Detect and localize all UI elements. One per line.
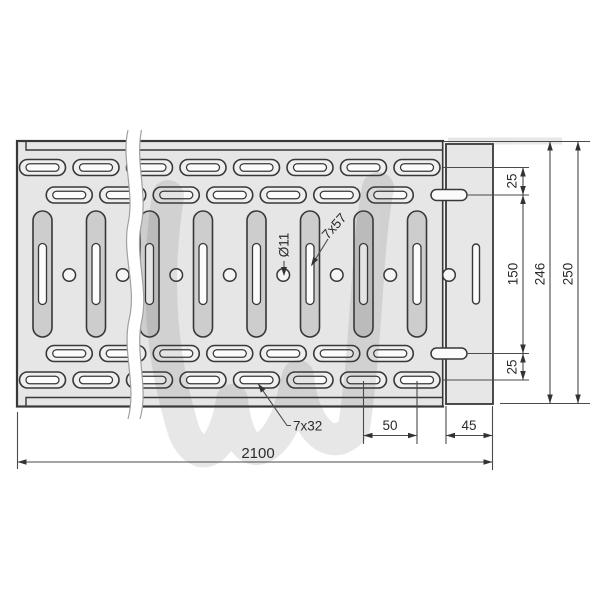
round-hole	[384, 269, 397, 282]
dim-label-45: 45	[461, 418, 476, 433]
junction-slot-bottom	[431, 348, 467, 359]
dimension-150: 150	[506, 195, 526, 354]
dimension-25-top: 25	[505, 168, 526, 196]
slot-hole	[46, 187, 92, 203]
dim-label-25-top: 25	[505, 173, 520, 188]
dim-label-50: 50	[382, 418, 397, 433]
callout-label-dia11: Ø11	[277, 233, 292, 258]
slot-hole	[207, 187, 253, 203]
slot-hole	[20, 372, 66, 388]
slot-row-top-inner	[46, 187, 413, 203]
slot-hole	[234, 160, 280, 176]
round-hole	[330, 269, 343, 282]
slot-hole	[73, 372, 119, 388]
capsule-slot	[87, 211, 106, 337]
capsule-slot	[408, 211, 427, 337]
round-hole	[223, 269, 236, 282]
callout-label-7x32: 7x32	[293, 419, 322, 434]
dimension-25-bottom: 25	[505, 354, 526, 381]
capsule-slot	[247, 211, 266, 337]
dim-label-246: 246	[533, 263, 548, 286]
dim-label-25-bottom: 25	[505, 359, 520, 374]
capsule-slot	[194, 211, 213, 337]
dim-label-250: 250	[561, 263, 576, 286]
slot-hole	[260, 187, 306, 203]
drawing-canvas: 25 150 25 246 250 50	[0, 0, 600, 600]
round-hole	[63, 269, 76, 282]
slot-hole	[394, 160, 440, 176]
junction-round-hole	[443, 269, 456, 282]
dimension-250: 250	[561, 142, 581, 404]
cable-tray-drawing: 25 150 25 246 250 50	[0, 0, 600, 600]
slot-hole	[20, 160, 66, 176]
capsule-slot	[301, 211, 320, 337]
slot-hole	[207, 346, 253, 362]
slot-hole	[234, 372, 280, 388]
capsule-slot	[33, 211, 52, 337]
slot-hole	[46, 346, 92, 362]
slot-hole	[180, 160, 226, 176]
dimension-246: 246	[533, 142, 553, 404]
slot-hole	[73, 160, 119, 176]
slot-hole	[287, 160, 333, 176]
dim-label-2100: 2100	[241, 445, 274, 462]
slot-hole	[314, 187, 360, 203]
dim-label-150: 150	[506, 263, 521, 286]
flange-vertical-slot	[473, 244, 480, 304]
round-hole	[116, 269, 129, 282]
junction-slot-top	[431, 190, 467, 201]
slot-hole	[260, 346, 306, 362]
